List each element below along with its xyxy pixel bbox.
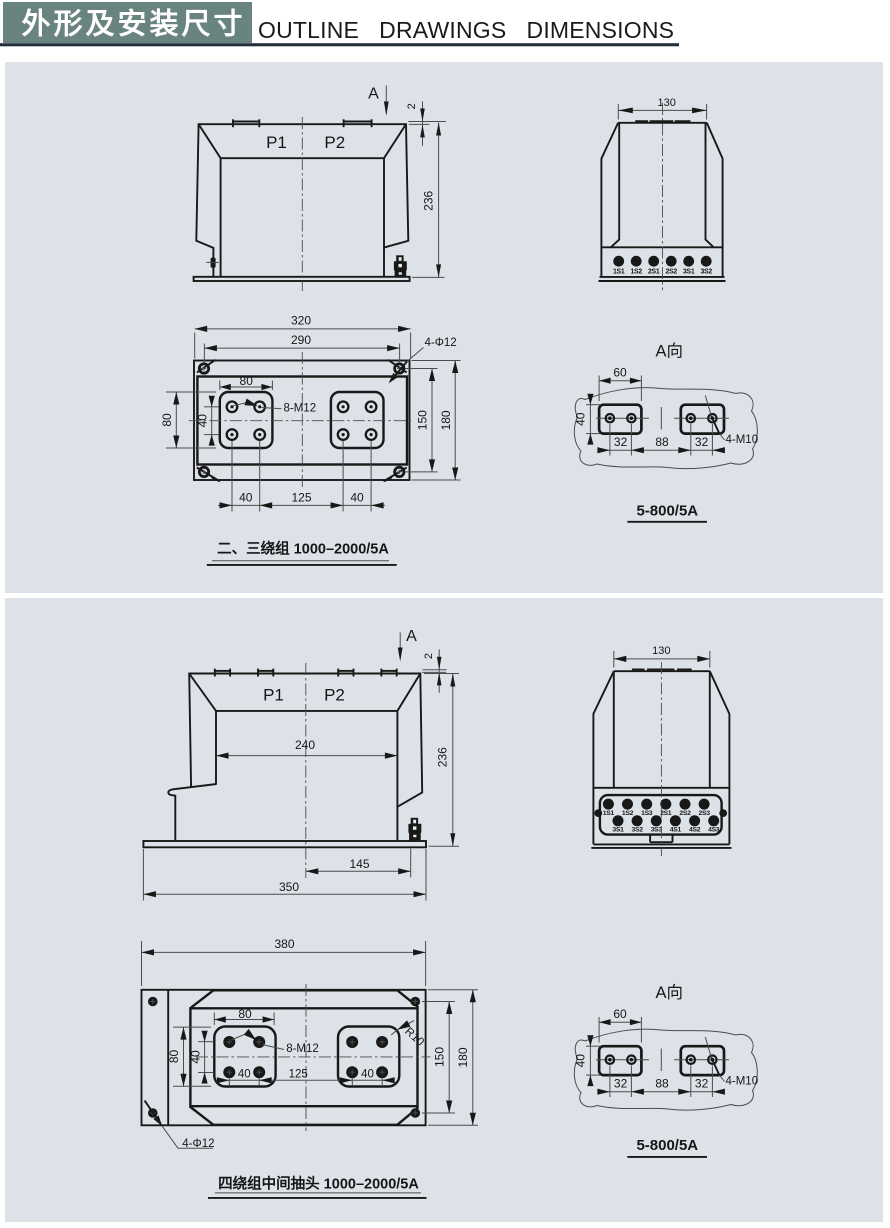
svg-text:150: 150	[433, 1047, 447, 1067]
svg-text:3S1: 3S1	[683, 269, 695, 276]
svg-text:外形及安装尺寸: 外形及安装尺寸	[21, 8, 245, 41]
svg-text:二、三绕组 1000–2000/5A: 二、三绕组 1000–2000/5A	[217, 540, 389, 558]
svg-text:P2: P2	[324, 133, 345, 152]
svg-text:4-M10: 4-M10	[726, 1076, 759, 1088]
svg-text:5-800/5A: 5-800/5A	[636, 503, 698, 520]
svg-text:60: 60	[613, 366, 627, 380]
svg-text:80: 80	[160, 413, 174, 427]
svg-text:A向: A向	[656, 342, 684, 361]
svg-text:5-800/5A: 5-800/5A	[636, 1137, 698, 1154]
svg-text:32: 32	[614, 1077, 628, 1091]
svg-text:32: 32	[695, 435, 709, 449]
svg-text:3S2: 3S2	[631, 826, 643, 833]
svg-text:180: 180	[456, 1047, 470, 1067]
svg-text:180: 180	[439, 410, 453, 430]
svg-text:1S1: 1S1	[613, 269, 625, 276]
svg-text:380: 380	[274, 937, 294, 951]
svg-text:四绕组中间抽头 1000–2000/5A: 四绕组中间抽头 1000–2000/5A	[218, 1175, 419, 1193]
svg-text:A: A	[406, 628, 417, 645]
svg-text:2S1: 2S1	[660, 810, 672, 817]
svg-text:8-M12: 8-M12	[286, 1043, 319, 1055]
svg-text:P1: P1	[266, 133, 287, 152]
svg-text:4S3: 4S3	[708, 826, 720, 833]
svg-text:80: 80	[167, 1050, 181, 1064]
svg-text:40: 40	[350, 490, 364, 504]
svg-text:1S1: 1S1	[603, 810, 615, 817]
svg-text:40: 40	[574, 412, 588, 426]
svg-text:2S3: 2S3	[698, 810, 710, 817]
svg-text:3S1: 3S1	[612, 826, 624, 833]
svg-text:88: 88	[655, 1077, 669, 1091]
svg-text:A向: A向	[656, 983, 684, 1002]
svg-text:8-M12: 8-M12	[284, 403, 317, 415]
svg-text:40: 40	[238, 1069, 251, 1081]
svg-text:350: 350	[279, 880, 299, 894]
svg-text:40: 40	[361, 1069, 374, 1081]
svg-text:125: 125	[289, 1069, 308, 1081]
svg-text:P1: P1	[263, 685, 284, 704]
svg-text:2: 2	[406, 103, 418, 109]
svg-text:4-Φ12: 4-Φ12	[425, 337, 457, 349]
svg-text:2S2: 2S2	[666, 269, 678, 276]
svg-text:60: 60	[613, 1007, 627, 1021]
svg-text:3S2: 3S2	[701, 269, 713, 276]
svg-text:130: 130	[658, 97, 676, 109]
svg-text:125: 125	[291, 490, 311, 504]
svg-text:80: 80	[240, 374, 254, 388]
svg-text:3S3: 3S3	[651, 826, 663, 833]
svg-text:A: A	[368, 85, 379, 102]
svg-text:150: 150	[416, 410, 430, 430]
svg-text:40: 40	[239, 490, 253, 504]
svg-text:2S1: 2S1	[648, 269, 660, 276]
svg-text:80: 80	[238, 1007, 252, 1021]
svg-text:290: 290	[291, 333, 311, 347]
svg-text:320: 320	[291, 313, 311, 327]
svg-text:2S2: 2S2	[679, 810, 691, 817]
svg-text:236: 236	[422, 190, 436, 210]
svg-text:88: 88	[655, 435, 669, 449]
svg-text:1S2: 1S2	[622, 810, 634, 817]
svg-text:4S1: 4S1	[670, 826, 682, 833]
svg-text:4S2: 4S2	[689, 826, 701, 833]
svg-text:236: 236	[436, 747, 450, 767]
svg-text:32: 32	[614, 435, 628, 449]
svg-text:2: 2	[423, 653, 435, 659]
svg-text:32: 32	[695, 1077, 709, 1091]
svg-text:240: 240	[295, 738, 315, 752]
svg-text:40: 40	[574, 1054, 588, 1068]
svg-text:1S3: 1S3	[641, 810, 653, 817]
svg-text:P2: P2	[324, 685, 345, 704]
svg-text:130: 130	[652, 645, 670, 657]
svg-text:4-Φ12: 4-Φ12	[182, 1138, 214, 1150]
svg-text:145: 145	[349, 857, 369, 871]
svg-text:4-M10: 4-M10	[726, 434, 759, 446]
svg-text:40: 40	[195, 414, 209, 428]
svg-text:40: 40	[188, 1050, 202, 1064]
svg-text:OUTLINE DRAWINGS DIMENSIONS: OUTLINE DRAWINGS DIMENSIONS	[258, 17, 674, 43]
svg-text:1S2: 1S2	[631, 269, 643, 276]
